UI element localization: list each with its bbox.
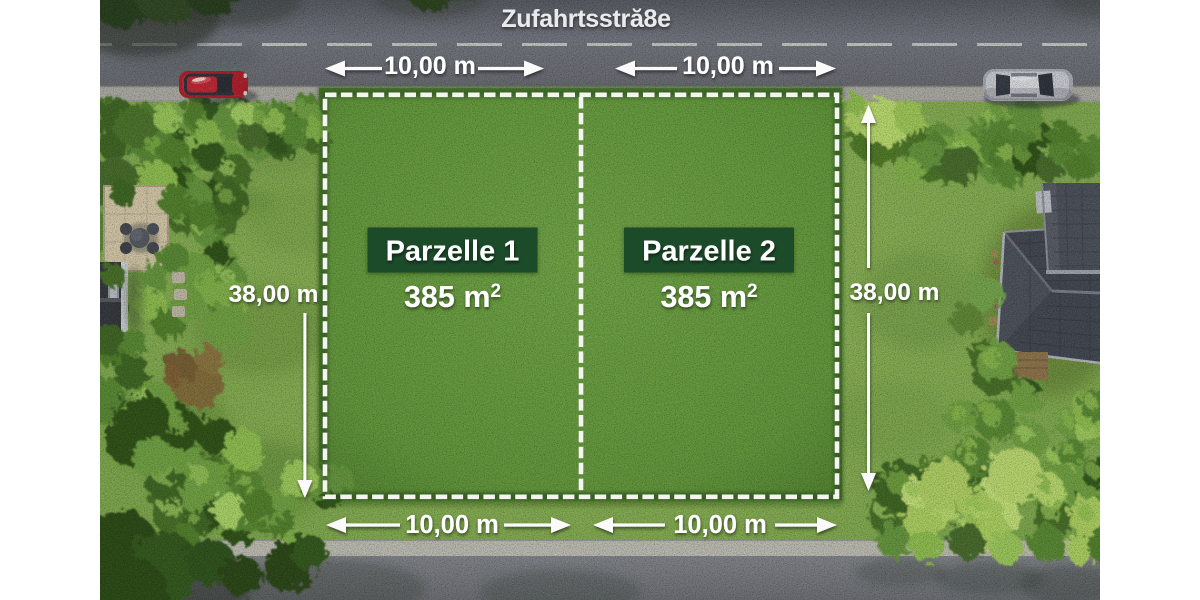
svg-text:Parzelle 2: Parzelle 2 bbox=[642, 236, 776, 268]
svg-text:385 m2: 385 m2 bbox=[660, 280, 757, 314]
svg-text:Parzelle 1: Parzelle 1 bbox=[386, 236, 520, 268]
svg-text:10,00 m: 10,00 m bbox=[682, 52, 774, 80]
svg-text:38,00 m: 38,00 m bbox=[850, 279, 940, 306]
svg-text:38,00 m: 38,00 m bbox=[229, 281, 319, 308]
svg-text:385 m2: 385 m2 bbox=[404, 280, 501, 314]
svg-text:10,00 m: 10,00 m bbox=[673, 511, 767, 539]
svg-text:10,00 m: 10,00 m bbox=[405, 511, 499, 539]
svg-text:10,00 m: 10,00 m bbox=[384, 52, 476, 80]
svg-text:Zufahrtsstră8e: Zufahrtsstră8e bbox=[501, 5, 671, 33]
